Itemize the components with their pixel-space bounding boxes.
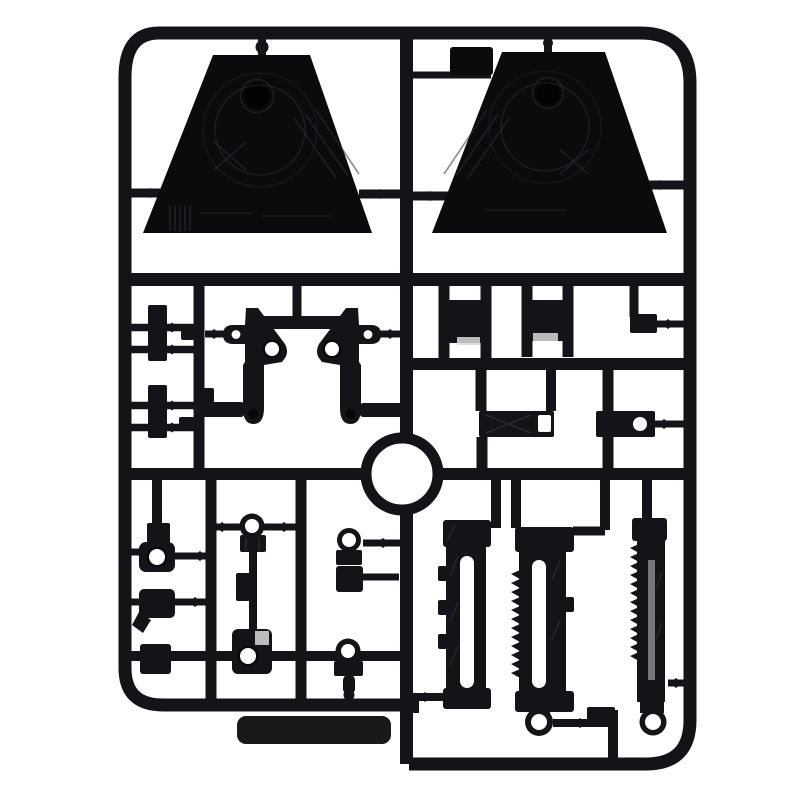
knuckle1-hole: [149, 549, 165, 565]
bracket-right-arm-hole: [364, 330, 373, 339]
bar-part-lower: [148, 385, 167, 438]
photo-stage: [0, 0, 800, 800]
rail3-top-flange: [632, 518, 667, 541]
bracket-left-arm-hole: [232, 330, 241, 339]
knuckle7-hole: [341, 644, 355, 658]
socket-right-notch: [533, 333, 558, 341]
rail1-bottom-flange: [443, 688, 491, 709]
bar-part-upper: [148, 305, 167, 361]
knuckle6-hole: [342, 533, 356, 547]
gate-bulb-left: [256, 41, 269, 54]
knuckle6-body: [336, 550, 362, 565]
rail-junction-fillet: [403, 700, 419, 713]
rail3-ring-hole: [645, 714, 661, 730]
rail2-connector: [587, 707, 615, 720]
bracket-right-foot-dot: [346, 409, 356, 419]
knuckle5-glint: [255, 631, 269, 645]
side-block: [236, 573, 253, 601]
rail2-ring-hole: [531, 714, 547, 730]
bracket-left-boss-hole: [265, 342, 279, 356]
holed-plate-hole: [633, 417, 647, 431]
knuckle6-block: [336, 566, 363, 592]
rail1-bump3: [438, 634, 447, 649]
rail1-bump2: [438, 600, 447, 615]
sprue-photo: [0, 0, 800, 800]
rail2-bottom-flange: [515, 691, 574, 712]
trapezoid-left-hole: [245, 84, 269, 108]
rail1-bump1: [438, 566, 447, 581]
block-part: [140, 644, 171, 674]
socket-part-left: [447, 300, 489, 343]
foot-link-bar-right: [360, 403, 405, 417]
lump-upper: [181, 324, 194, 340]
rail2-slot: [532, 560, 546, 688]
small-tab-part: [450, 47, 493, 75]
t-part: [630, 314, 657, 333]
foot-link-block-left: [196, 388, 214, 403]
knuckle4-hole: [245, 519, 259, 533]
knuckle5-hole: [240, 648, 256, 664]
rail1-slot: [460, 556, 474, 688]
trapezoid-right-hole: [537, 82, 559, 104]
knuckle4-body: [240, 535, 266, 552]
lump-lower: [179, 417, 194, 430]
knuckle7-body: [334, 661, 363, 676]
rail2-bump: [565, 597, 574, 612]
socket-left-notch: [457, 337, 480, 345]
rail3-slot-glint: [648, 560, 655, 680]
foot-link-bar-left: [199, 402, 244, 417]
rail2-top-flange: [515, 527, 574, 552]
shadow-strip: [237, 716, 391, 744]
bracket-left-foot-dot: [249, 409, 259, 419]
gate-bulb-right: [543, 38, 553, 48]
slotted-plate-slot: [538, 415, 551, 432]
bracket-right-boss-hole: [325, 342, 339, 356]
knuckle7-pin-tip: [344, 690, 355, 701]
knuckle2-body: [139, 589, 175, 618]
